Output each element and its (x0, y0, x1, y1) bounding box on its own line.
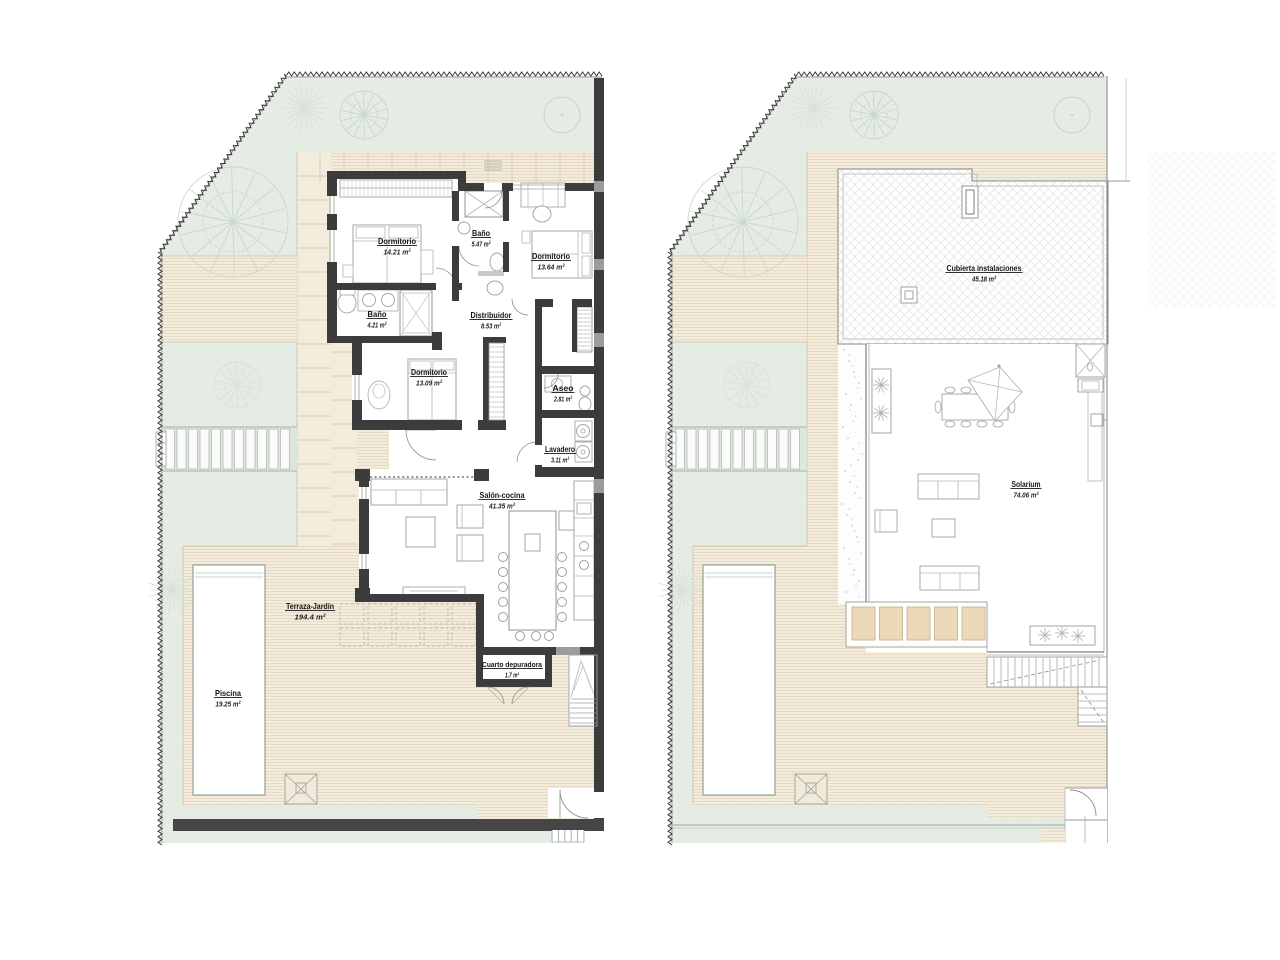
svg-text:194.4 m²: 194.4 m² (295, 613, 326, 622)
svg-text:Dormitorio: Dormitorio (378, 237, 416, 246)
svg-text:14.21 m²: 14.21 m² (384, 248, 411, 257)
svg-text:Cubierta instalaciones: Cubierta instalaciones (947, 264, 1022, 273)
svg-text:Baño: Baño (368, 310, 387, 319)
svg-text:Dormitorio: Dormitorio (532, 252, 570, 261)
svg-text:13.09 m²: 13.09 m² (416, 379, 442, 388)
svg-text:Dormitorio: Dormitorio (411, 368, 447, 377)
svg-text:Baño: Baño (472, 229, 490, 238)
svg-text:5.47 m²: 5.47 m² (472, 240, 491, 249)
svg-text:45.18 m²: 45.18 m² (971, 275, 996, 284)
svg-text:Terraza-Jardín: Terraza-Jardín (286, 602, 334, 611)
svg-text:Piscina: Piscina (215, 689, 241, 698)
svg-text:Salón-cocina: Salón-cocina (480, 491, 525, 500)
svg-text:Distribuidor: Distribuidor (471, 311, 513, 320)
svg-text:41.35 m²: 41.35 m² (488, 502, 515, 511)
svg-text:3.11 m²: 3.11 m² (551, 456, 569, 465)
svg-text:74.06 m²: 74.06 m² (1014, 491, 1039, 500)
svg-text:Lavadero: Lavadero (545, 445, 575, 454)
svg-text:8.53 m²: 8.53 m² (481, 322, 501, 331)
svg-text:Cuarto depuradora: Cuarto depuradora (482, 660, 543, 669)
svg-text:13.64 m²: 13.64 m² (538, 263, 565, 272)
svg-text:1.7 m²: 1.7 m² (505, 673, 519, 680)
svg-text:4.21 m²: 4.21 m² (367, 321, 387, 330)
svg-text:Solarium: Solarium (1012, 480, 1041, 489)
svg-text:Aseo: Aseo (553, 384, 574, 393)
svg-text:2.81 m²: 2.81 m² (553, 395, 572, 404)
svg-text:19.25 m²: 19.25 m² (216, 700, 241, 709)
